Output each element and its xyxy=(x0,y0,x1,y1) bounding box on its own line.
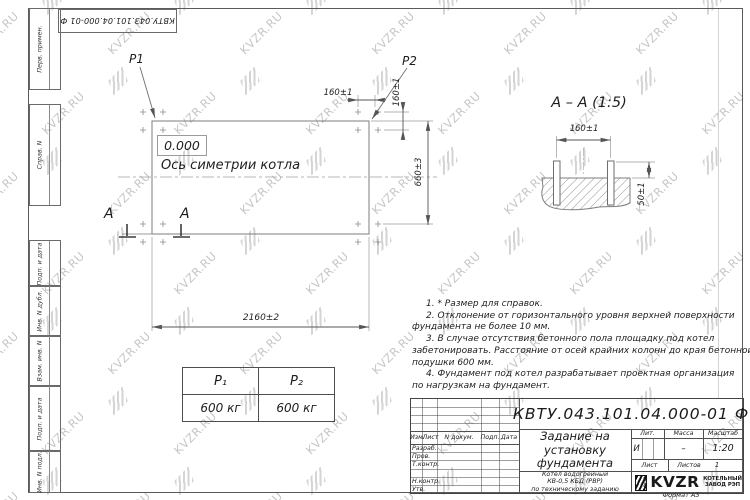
level-value: 0.000 xyxy=(164,138,200,153)
logo-name: KVZR xyxy=(649,472,701,492)
margin-box-label: Инв. N подл. xyxy=(36,451,43,493)
margin-box: Перв. примен. xyxy=(29,8,61,90)
watermark-text: KVZR.RU xyxy=(0,9,21,57)
note-line: подушки 600 мм. xyxy=(412,358,744,370)
dim-foundation-length: 2160±2 xyxy=(226,313,296,323)
note-line: по нагрузкам на фундамент. xyxy=(412,381,744,393)
doc-number-box: КВТУ.043.101.04.000-01 Ф xyxy=(58,9,177,33)
tb-row-razrab: Разраб. xyxy=(412,444,438,452)
section-letter-right: А xyxy=(180,206,190,222)
doc-number-rotated: КВТУ.043.101.04.000-01 Ф xyxy=(59,10,176,32)
load-table-value-p1: 600 кг xyxy=(183,394,258,421)
watermark-text: KVZR.RU xyxy=(0,329,21,377)
tb-row-empty xyxy=(412,469,438,477)
margin-box-label: Инв. N дубл. xyxy=(36,290,43,331)
tb-row-tkontr: Т.контр. xyxy=(412,460,438,469)
technical-notes: 1. * Размер для справок.2. Отклонение от… xyxy=(412,299,744,393)
note-line: 1. * Размер для справок. xyxy=(412,299,744,311)
dim-foundation-width: 660±3 xyxy=(414,150,424,194)
margin-box-divider xyxy=(49,386,50,451)
tb-header-list: Лист xyxy=(423,431,438,444)
section-dim-spacing: 160±1 xyxy=(556,124,612,134)
scale-value: 1:20 xyxy=(703,438,743,459)
tb-header-podp: Подп. xyxy=(481,431,499,444)
margin-box-divider xyxy=(49,451,50,492)
level-mark: 0.000 xyxy=(157,135,207,156)
dim-bolt-spacing-y: 160±1 xyxy=(392,72,402,112)
margin-box-label: Подп. и дата xyxy=(36,242,43,285)
tb-row-prov: Пров. xyxy=(412,452,438,460)
mass-label: Масса xyxy=(664,429,703,438)
load-point-p2-label: P2 xyxy=(402,54,417,68)
margin-box: Подп. и дата xyxy=(29,240,61,287)
watermark-text: KVZR.RU xyxy=(0,489,21,500)
load-table-header-p1: P₁ xyxy=(183,368,258,394)
margin-box-label: Перв. примен. xyxy=(36,25,43,72)
mass-value: – xyxy=(664,438,703,459)
load-table-header-p2: P₂ xyxy=(259,368,334,394)
document-subtitle: Котел водогрейный КВ-0,5 КБД (РВР) по те… xyxy=(519,472,631,492)
dim-bolt-spacing-x: 160±1 xyxy=(316,88,360,98)
note-line: 2. Отклонение от горизонтального уровня … xyxy=(412,311,744,323)
note-line: забетонировать. Расстояние от осей крайн… xyxy=(412,346,744,358)
margin-box-label: Подп. и дата xyxy=(36,397,43,440)
margin-box-divider xyxy=(49,241,50,286)
margin-box: Справ. N xyxy=(29,104,61,206)
margin-box: Взам. инв. N xyxy=(29,335,61,387)
title-block: КВТУ.043.101.04.000-01 Ф Изм. Лист N док… xyxy=(410,398,744,494)
margin-box: Инв. N дубл. xyxy=(29,285,61,337)
load-table: P₁ P₂ 600 кг 600 кг xyxy=(182,367,335,422)
tb-row-utv: Утв. xyxy=(412,485,438,493)
load-point-p1-label: P1 xyxy=(129,52,144,66)
margin-box: Инв. N подл. xyxy=(29,450,61,493)
load-table-value-p2: 600 кг xyxy=(259,394,334,421)
margin-box: Подп. и дата xyxy=(29,385,61,452)
margin-box-divider xyxy=(49,286,50,336)
margin-box-label: Справ. N xyxy=(36,141,43,170)
section-dim-height: 50±1 xyxy=(637,176,647,212)
section-letter-left: А xyxy=(104,206,114,222)
margin-box-label: Взам. инв. N xyxy=(36,341,43,382)
note-line: фундамента не более 10 мм. xyxy=(412,322,744,334)
sheets-label: Листов xyxy=(671,459,707,471)
watermark-text: KVZR.RU xyxy=(0,169,21,217)
tb-header-data: Дата xyxy=(499,431,519,444)
logo-subtitle: КОТЕЛЬНЫЙ ЗАВОД РЭП xyxy=(702,473,743,491)
note-line: 4. Фундамент под котел разрабатывает про… xyxy=(412,369,744,381)
margin-box-divider xyxy=(49,9,50,89)
drawing-sheet: KVZR.RUKVZR.RUKVZR.RUKVZR.RUKVZR.RUKVZR.… xyxy=(0,0,750,500)
lit-value: И xyxy=(631,438,642,459)
designation: КВТУ.043.101.04.000-01 Ф xyxy=(519,399,743,429)
sheet-label: Лист xyxy=(631,459,668,471)
sheets-value: 1 xyxy=(707,459,727,471)
margin-box-divider xyxy=(49,336,50,386)
tb-row-nkontr: Н.контр. xyxy=(412,477,438,485)
lit-label: Лит. xyxy=(631,429,664,438)
tb-header-ndoc: N докум. xyxy=(437,431,481,444)
section-title: А – А (1:5) xyxy=(534,95,644,111)
document-title: Задание на установку фундамента xyxy=(519,430,631,471)
symmetry-axis-label: Ось симетрии котла xyxy=(161,158,300,173)
scale-label: Масштаб xyxy=(703,429,743,438)
note-line: 3. В случае отсутствия бетонного пола пл… xyxy=(412,334,744,346)
margin-box-divider xyxy=(49,105,50,205)
